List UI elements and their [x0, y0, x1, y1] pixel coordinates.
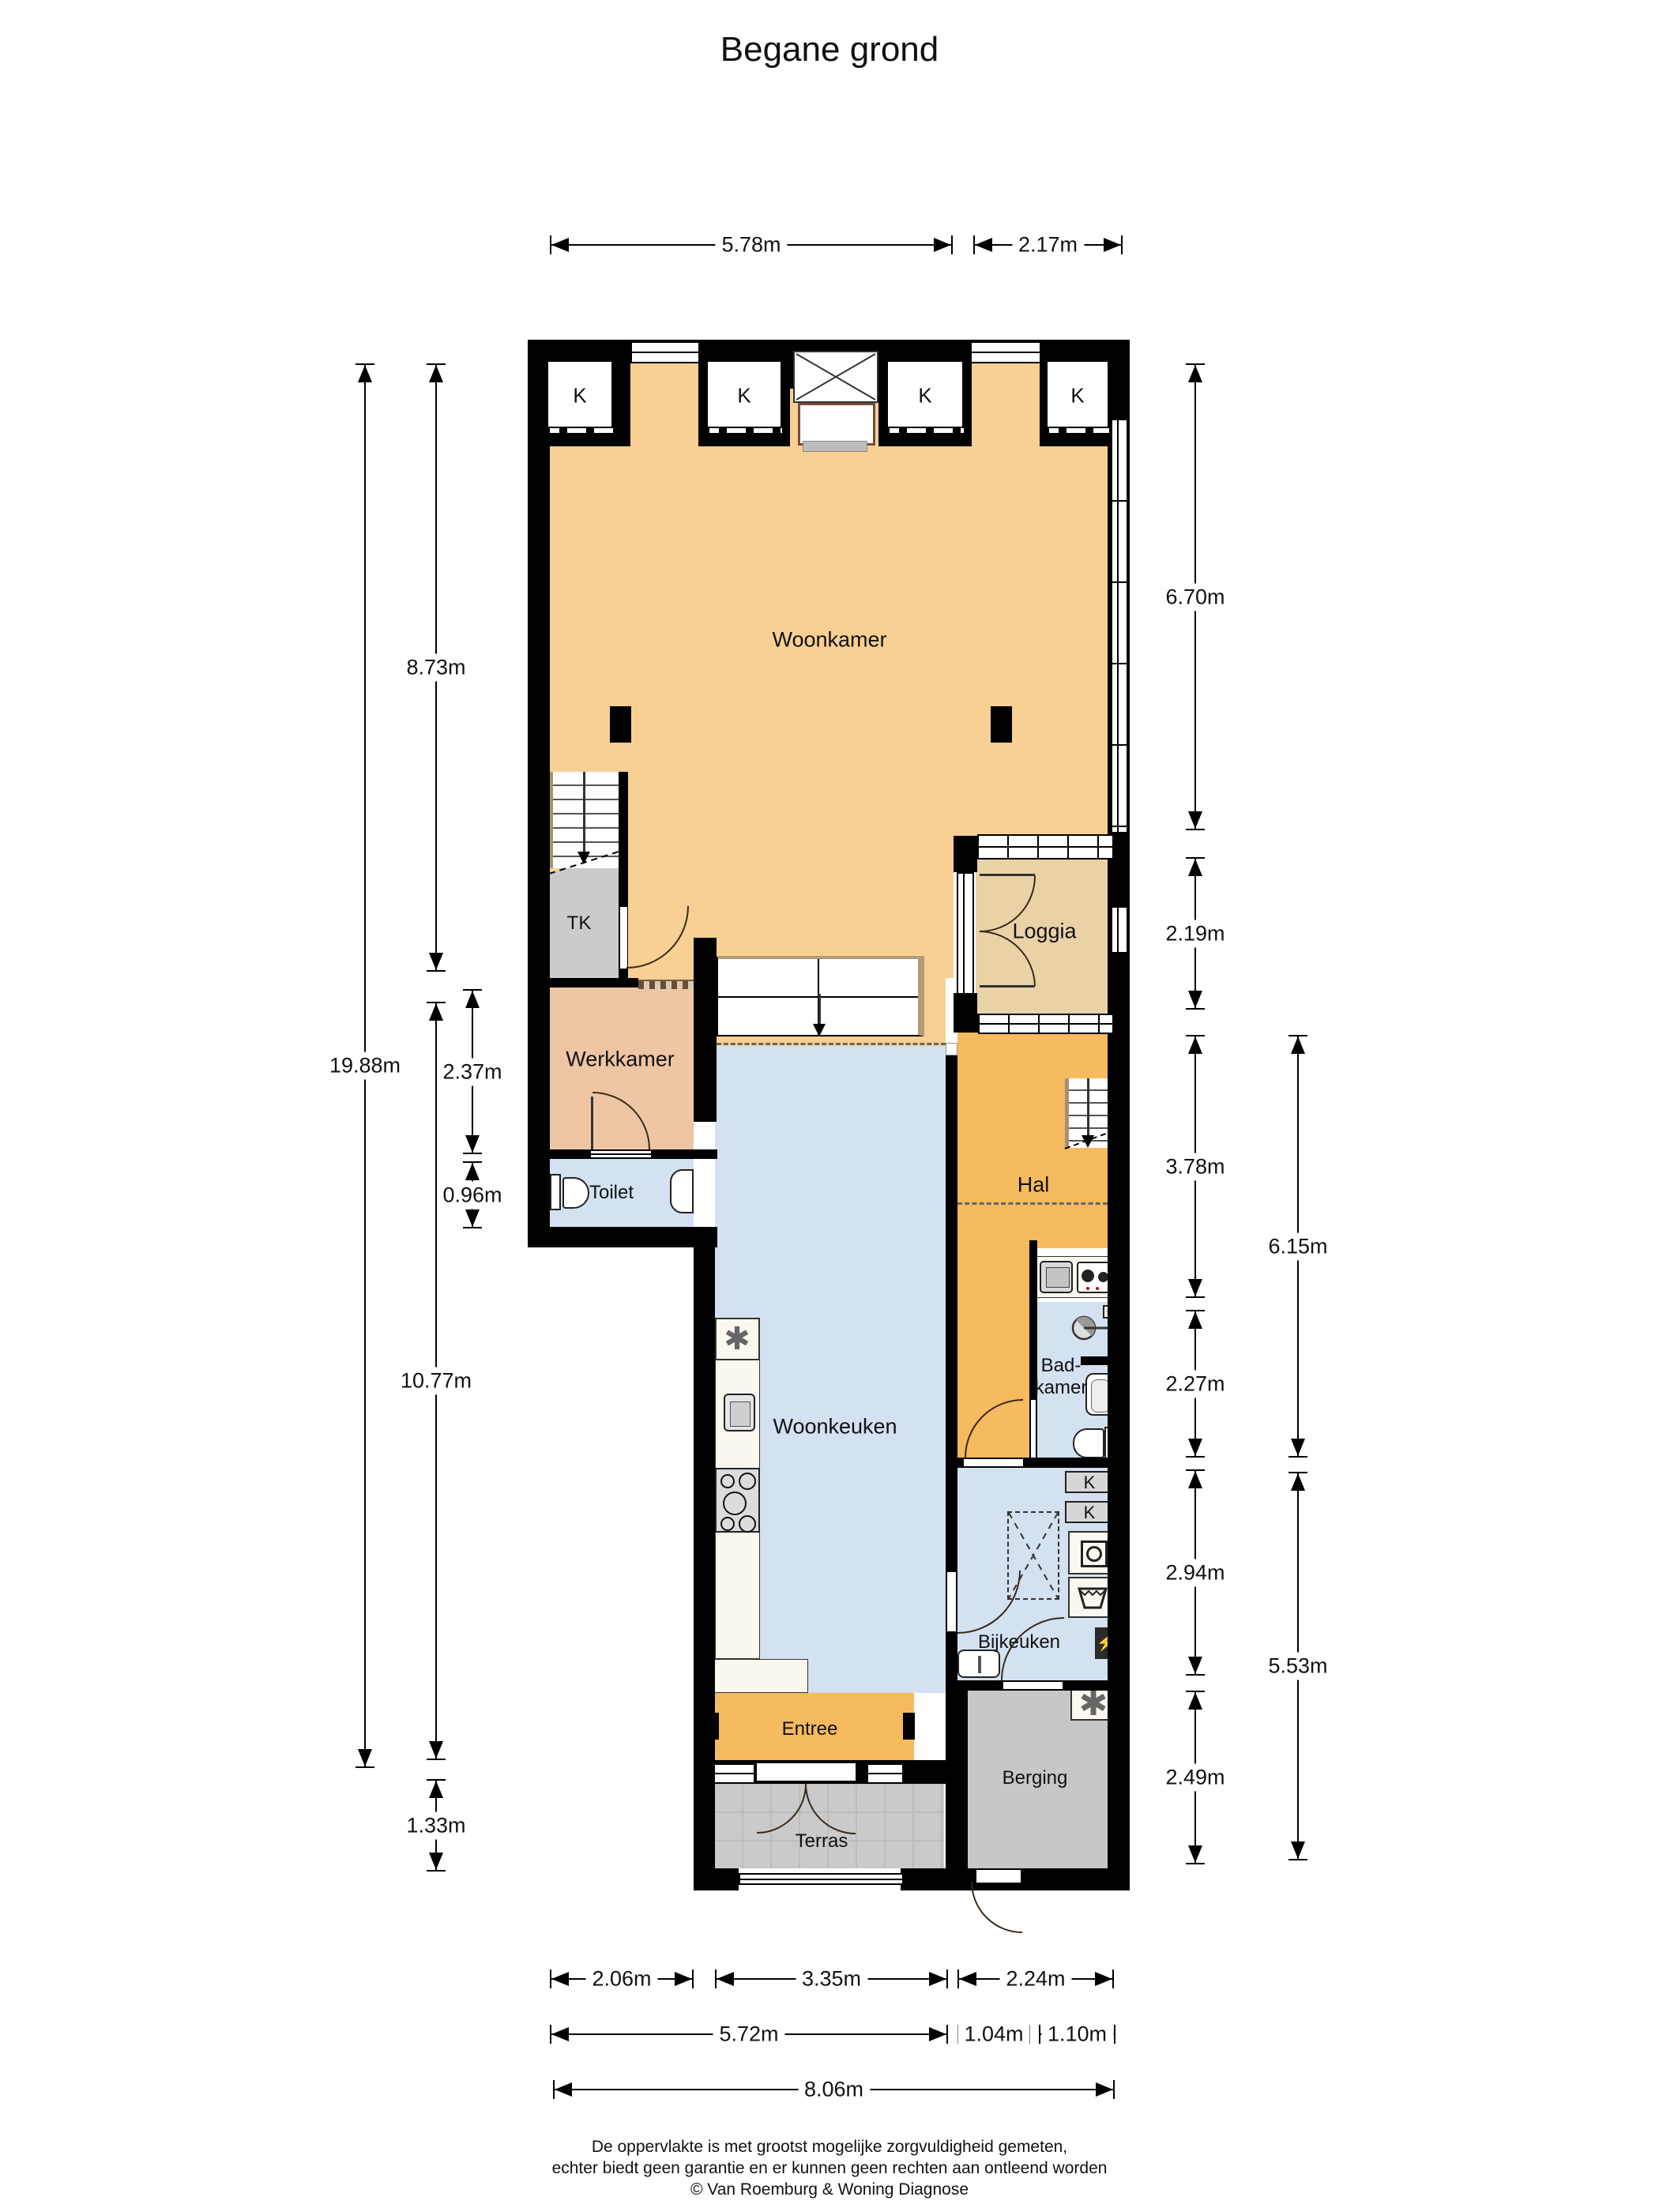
dimension-right-6-15: 6.15m: [1287, 1035, 1309, 1458]
label-hal: Hal: [1018, 1173, 1050, 1198]
window-loggia-bottom: [978, 1014, 1114, 1034]
window-loggia-top: [977, 834, 1114, 860]
door-terras-arcs: [757, 1784, 856, 1834]
kitchenette-sink-basin: [1046, 1267, 1070, 1288]
dimension-bottom-2-24: 2.24m: [957, 1968, 1114, 1990]
wall-pillar-kitchen: [694, 938, 717, 1122]
closet-doors: [548, 427, 615, 434]
toilet-cistern: [550, 1174, 561, 1210]
dimension-left-19-88: 19.88m: [354, 363, 376, 1768]
label-werkkamer: Werkkamer: [566, 1048, 675, 1072]
doorway-terras: [757, 1763, 856, 1781]
wall-left: [528, 340, 550, 1247]
stove: [715, 1468, 760, 1533]
bijkeuken-sink: [957, 1650, 1000, 1678]
label-closet-k: K: [918, 384, 931, 408]
window-front-right: [867, 1763, 904, 1784]
wall-toilet-bottom: [528, 1227, 717, 1247]
wall-kitchen-hal: [946, 1055, 957, 1464]
dimension-top-2: 2.17m: [973, 234, 1123, 256]
label-woonkamer: Woonkamer: [772, 628, 886, 653]
disclaimer: De oppervlakte is met grootst mogelijke …: [0, 2136, 1659, 2200]
dimension-right-2-27: 2.27m: [1184, 1310, 1206, 1458]
door-bijkeuken: [946, 1571, 957, 1633]
dimension-left-1-33: 1.33m: [425, 1779, 447, 1872]
label-entree: Entree: [782, 1718, 838, 1740]
kitchen-sink: [724, 1394, 755, 1431]
wall-loggia-bottom-left: [954, 1014, 978, 1033]
step-arrow-icon: [813, 1024, 826, 1036]
stove-burner: [739, 1515, 756, 1533]
staircase-hal-cut-line: [1065, 1127, 1112, 1152]
dimension-bottom-1-10: 1.10m: [1039, 2023, 1115, 2045]
dimension-right-2-49: 2.49m: [1184, 1691, 1206, 1864]
closet-doors: [708, 427, 784, 434]
floorplan-page: Begane grond ✱: [0, 0, 1659, 2212]
window-front-left: [713, 1763, 755, 1784]
fireplace-flue: [793, 351, 878, 403]
fireplace-hearth: [798, 403, 875, 446]
label-closet-k: K: [1070, 384, 1084, 408]
door-berging-outside-arc: [972, 1882, 1022, 1932]
hob-burner: [1082, 1270, 1094, 1282]
closet-doors: [888, 427, 965, 434]
staircase-center-line: [583, 772, 585, 855]
label-loggia: Loggia: [1012, 920, 1076, 944]
fireplace-base: [803, 441, 867, 452]
staircase-cut-line: [549, 847, 619, 878]
label-closet-k: K: [1084, 1503, 1096, 1523]
toilet-washbasin: [670, 1169, 694, 1213]
column: [991, 706, 1012, 743]
wall-berging-left: [957, 1691, 968, 1868]
wall-badkamer-stub: [1081, 1356, 1114, 1365]
dimension-bottom-3-35: 3.35m: [715, 1968, 948, 1990]
kitchen-counter-end: [711, 1659, 808, 1693]
label-badkamer-1: Bad-: [1041, 1355, 1082, 1377]
kitchen-sink-basin: [730, 1401, 750, 1427]
label-closet-k: K: [573, 384, 586, 408]
stove-burner: [739, 1473, 756, 1490]
dimension-right-6-70: 6.70m: [1184, 363, 1206, 830]
page-title: Begane grond: [0, 30, 1659, 70]
dimension-right-3-78: 3.78m: [1184, 1035, 1206, 1298]
dimension-bottom-1-04: 1.04m: [957, 2023, 1030, 2045]
disclaimer-line-1: De oppervlakte is met grootst mogelijke …: [0, 2136, 1659, 2157]
label-toilet: Toilet: [589, 1182, 634, 1204]
fridge-star-icon: ✱: [724, 1323, 750, 1355]
dimension-bottom-5-72: 5.72m: [550, 2023, 948, 2045]
fireplace-cross: [795, 352, 877, 401]
wall-stub-entree-right: [903, 1713, 915, 1740]
dimension-right-5-53: 5.53m: [1287, 1472, 1309, 1860]
wall-terras-right-post: [901, 1868, 946, 1890]
wall-bottom-left-corner: [694, 1868, 739, 1890]
wall-loggia-left-top: [954, 836, 977, 872]
label-closet-k: K: [737, 384, 750, 408]
stove-burner: [720, 1517, 735, 1531]
dimension-bottom-8-06: 8.06m: [553, 2078, 1115, 2101]
label-berging: Berging: [1003, 1767, 1068, 1789]
window-top-2: [970, 341, 1043, 363]
dimension-left-10-77: 10.77m: [425, 1002, 447, 1760]
label-bijkeuken: Bijkeuken: [978, 1631, 1060, 1653]
door-hal-arc: [965, 1400, 1025, 1460]
hob-dot: [1086, 1287, 1089, 1290]
dimension-top-1: 5.78m: [550, 234, 953, 256]
split-level-dashed-line: [717, 1043, 946, 1045]
dimension-right-2-19: 2.19m: [1184, 857, 1206, 1010]
label-terras: Terras: [796, 1830, 848, 1853]
column: [610, 706, 631, 743]
label-woonkeuken: Woonkeuken: [773, 1415, 897, 1439]
threshold-steps: [638, 980, 694, 989]
label-tk: TK: [567, 912, 592, 935]
closet-doors: [1048, 427, 1111, 434]
door-badkamer: [1029, 1398, 1037, 1460]
window-loggia-right: [1111, 906, 1128, 954]
washing-machine-drum: [1086, 1546, 1102, 1562]
step-arrow-line: [818, 994, 821, 1025]
door-werkkamer-arc: [592, 1093, 651, 1151]
disclaimer-line-2: echter biedt geen garantie en er kunnen …: [0, 2157, 1659, 2179]
window-right-woonkamer: [1111, 419, 1128, 833]
terras-railing: [739, 1873, 904, 1885]
doorway-bijkeuken-berging: [1002, 1680, 1064, 1691]
dimension-right-2-94: 2.94m: [1184, 1469, 1206, 1676]
label-closet-k: K: [1084, 1473, 1096, 1493]
stove-burner: [723, 1492, 747, 1515]
disclaimer-line-3: © Van Roemburg & Woning Diagnose: [0, 2179, 1659, 2200]
badkamer-toilet-bowl: [1073, 1428, 1104, 1458]
threshold-kitchen-hal: [946, 1043, 957, 1055]
washing-machine-door-icon: [1081, 1540, 1108, 1567]
dryer-icon: [1076, 1585, 1109, 1612]
boiler-star-icon: ✱: [1079, 1687, 1108, 1721]
bijkeuken-sink-faucet: [978, 1656, 981, 1673]
hob-dot: [1096, 1287, 1099, 1290]
wall-tk-bottom: [528, 978, 638, 987]
window-top-1: [630, 341, 702, 363]
kitchenette-sink: [1040, 1261, 1073, 1293]
stove-burner: [720, 1474, 735, 1488]
dimension-left-0-96: 0.96m: [461, 1161, 483, 1228]
label-badkamer-2: kamer: [1035, 1377, 1088, 1399]
hal-dashed-line: [957, 1202, 1108, 1205]
dimension-left-2-37: 2.37m: [461, 989, 483, 1154]
wall-stub-entree-left: [709, 1713, 719, 1740]
door-tk-arc: [626, 906, 690, 969]
dimension-left-8-73: 8.73m: [425, 363, 447, 972]
dimension-bottom-2-06: 2.06m: [550, 1968, 694, 1990]
wall-bijkeuken-left: [946, 1464, 957, 1890]
